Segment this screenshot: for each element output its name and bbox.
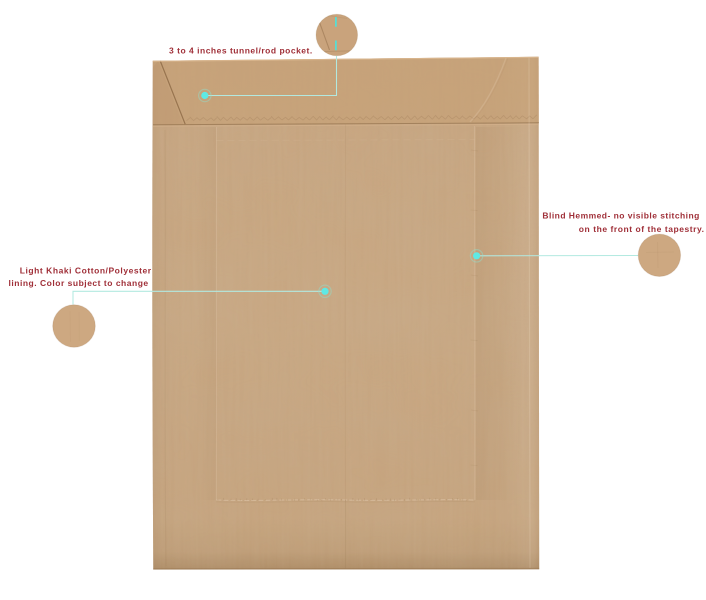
svg-text:Light Khaki Cotton/Polyester: Light Khaki Cotton/Polyester [20,266,152,276]
svg-text:3 to 4 inches tunnel/rod pocke: 3 to 4 inches tunnel/rod pocket. [169,46,313,56]
svg-text:lining. Color subject to chang: lining. Color subject to change [9,278,149,288]
svg-text:Blind Hemmed- no visible stitc: Blind Hemmed- no visible stitching [542,211,700,221]
svg-text:on the front of the tapestry.: on the front of the tapestry. [579,224,705,234]
